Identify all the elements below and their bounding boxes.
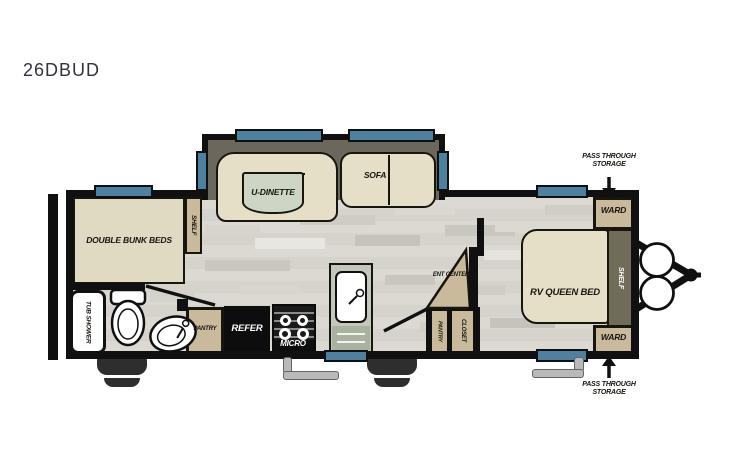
- propane-tank: [641, 277, 674, 310]
- rv-queen-bed-label: RV QUEEN BED: [523, 288, 607, 299]
- ward-bottom-label: WARD: [593, 333, 634, 343]
- bunk-shelf-label: SHELF: [185, 199, 202, 252]
- ent-center-wall: [469, 247, 478, 311]
- kitchen-faucet: [357, 290, 364, 297]
- u-dinette-label: U-DINETTE: [240, 188, 306, 198]
- arrow-up-head: [602, 356, 616, 366]
- hall-pantry-label: PANTRY: [432, 311, 447, 351]
- kitchen-faucet-spout: [349, 296, 357, 304]
- double-bunk-beds-label: DOUBLE BUNK BEDS: [76, 236, 182, 246]
- ward-top-label: WARD: [593, 206, 634, 216]
- ent-center-label: ENT CENTER: [430, 272, 472, 279]
- window-kitchen: [324, 350, 368, 362]
- propane-tank: [641, 244, 674, 277]
- window-slide-top-left: [235, 129, 323, 142]
- arrow-down-head: [602, 188, 616, 198]
- entry-handle: [283, 371, 339, 380]
- kitchen-pantry-label: PANTRY: [187, 326, 223, 333]
- pass-through-storage-bottom-label: PASS THROUGH STORAGE: [579, 381, 639, 397]
- bed-shelf-label: SHELF: [607, 231, 633, 325]
- window-slide-side-left: [196, 151, 208, 191]
- ent-center-unit: [427, 250, 470, 308]
- bath-sink: [146, 312, 199, 357]
- hall-closet-label: CLOSET: [452, 311, 473, 351]
- floorplan-canvas: 26DBUD DOUBLE BUNK BEDS SHELF U-DINETTE: [0, 0, 731, 469]
- bedroom-door-swing: [384, 309, 427, 331]
- window-bedroom-top: [536, 185, 588, 198]
- hitch-ball: [685, 269, 698, 282]
- front-handle: [532, 369, 584, 378]
- bathroom-door-swing: [146, 286, 215, 305]
- pass-through-storage-top-label: PASS THROUGH STORAGE: [579, 153, 639, 169]
- window-slide-side-right: [437, 151, 449, 191]
- window-bunk: [94, 185, 153, 198]
- window-slide-top-right: [348, 129, 435, 142]
- micro-label: MICRO: [270, 340, 316, 349]
- sofa-label: SOFA: [345, 171, 405, 181]
- tub-shower-label: TUB SHOWER: [72, 292, 104, 352]
- refer-label: REFER: [224, 324, 270, 335]
